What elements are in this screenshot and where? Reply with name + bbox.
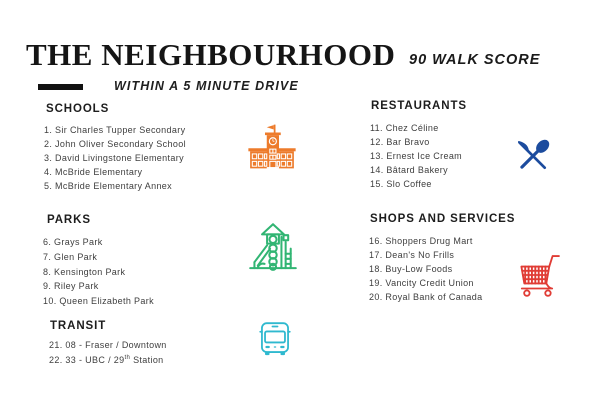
list-item: 18. Buy-Low Foods [369,262,482,276]
shopping-cart-icon [510,245,564,305]
accent-bar [38,84,83,90]
list-item: 10. Queen Elizabeth Park [43,294,154,309]
list-item: 2. John Oliver Secondary School [44,137,186,151]
list-item: 21. 08 - Fraser / Downtown [49,339,167,352]
neighbourhood-flyer: THE NEIGHBOURHOOD WITHIN A 5 MINUTE DRIV… [0,0,600,416]
list-item: 13. Ernest Ice Cream [370,149,462,163]
list-item: 1. Sir Charles Tupper Secondary [44,123,186,137]
shops-list: 16. Shoppers Drug Mart17. Dean's No Fril… [369,234,482,304]
transit-list: 21. 08 - Fraser / Downtown 22. 33 - UBC … [49,339,167,366]
list-item: 19. Vancity Credit Union [369,276,482,290]
list-item: 14. Bâtard Bakery [370,163,462,177]
list-item: 12. Bar Bravo [370,135,462,149]
restaurants-list: 11. Chez Céline12. Bar Bravo13. Ernest I… [370,121,462,191]
list-item: 8. Kensington Park [43,265,154,280]
page-subtitle: WITHIN A 5 MINUTE DRIVE [114,79,299,93]
bus-icon [253,316,297,362]
parks-header: PARKS [47,214,91,226]
restaurants-header: RESTAURANTS [371,100,467,112]
list-item: 15. Slo Coffee [370,177,462,191]
transit-header: TRANSIT [50,320,106,332]
list-item: 17. Dean's No Frills [369,248,482,262]
walk-score: 90 WALK SCORE [409,52,540,68]
list-item: 20. Royal Bank of Canada [369,290,482,304]
schools-header: SCHOOLS [46,103,109,115]
list-item: 5. McBride Elementary Annex [44,179,186,193]
list-item: 11. Chez Céline [370,121,462,135]
playground-icon [246,218,300,276]
list-item: 3. David Livingstone Elementary [44,151,186,165]
school-building-icon [244,122,300,178]
cutlery-icon [510,132,556,180]
page-title: THE NEIGHBOURHOOD [26,40,395,70]
list-item: 9. Riley Park [43,279,154,294]
list-item: 16. Shoppers Drug Mart [369,234,482,248]
list-item: 4. McBride Elementary [44,165,186,179]
schools-list: 1. Sir Charles Tupper Secondary2. John O… [44,123,186,193]
parks-list: 6. Grays Park7. Glen Park8. Kensington P… [43,235,154,309]
list-item: 6. Grays Park [43,235,154,250]
list-item: 7. Glen Park [43,250,154,265]
shops-header: SHOPS AND SERVICES [370,213,515,225]
list-item: 22. 33 - UBC / 29th Station [49,352,167,367]
